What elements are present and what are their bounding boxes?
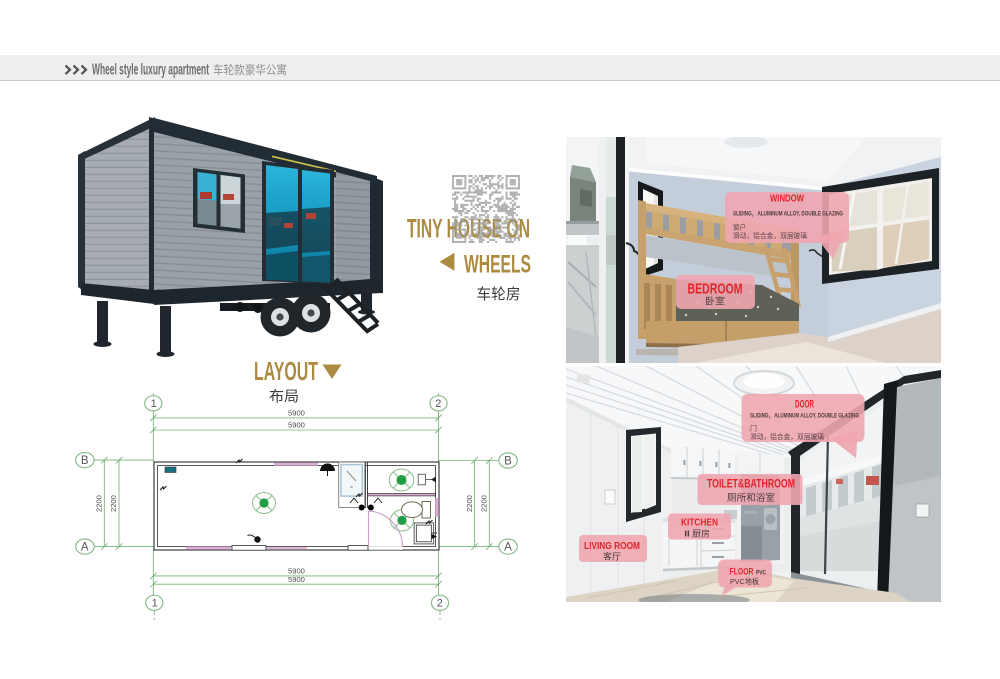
svg-text:DOOR: DOOR <box>795 399 814 411</box>
svg-text:LAYOUT: LAYOUT <box>254 356 318 386</box>
svg-text:LIVING ROOM: LIVING ROOM <box>584 541 640 552</box>
svg-text:SLIDING， ALUMINUM ALLOY, DOUB: SLIDING， ALUMINUM ALLOY, DOUBLE GLAZING <box>750 413 859 420</box>
svg-text:TOILET&BATHROOM: TOILET&BATHROOM <box>707 479 795 491</box>
svg-text:B: B <box>81 455 89 467</box>
svg-text:A: A <box>504 542 512 554</box>
svg-text:窗户: 窗户 <box>733 223 746 232</box>
svg-text:BEDROOM: BEDROOM <box>688 281 743 298</box>
svg-text:5900: 5900 <box>288 575 305 584</box>
svg-text:5900: 5900 <box>288 409 305 418</box>
svg-text:卧室: 卧室 <box>705 296 725 308</box>
svg-text:2: 2 <box>435 398 441 410</box>
svg-text:A: A <box>81 542 89 554</box>
svg-text:厕所和浴室: 厕所和浴室 <box>727 492 775 504</box>
svg-text:PVC: PVC <box>756 570 766 577</box>
svg-text:5900: 5900 <box>288 421 305 430</box>
svg-text:1: 1 <box>151 398 157 410</box>
svg-text:滑动，铝合金，双层玻璃: 滑动，铝合金，双层玻璃 <box>733 231 807 240</box>
svg-text:Wheel style luxury apartment: Wheel style luxury apartment <box>92 62 209 79</box>
svg-text:WINDOW: WINDOW <box>770 194 804 205</box>
svg-text:车轮款豪华公寓: 车轮款豪华公寓 <box>213 62 287 77</box>
svg-text:‖: ‖ <box>684 529 691 539</box>
svg-text:1: 1 <box>152 598 158 610</box>
svg-text:PVC地板: PVC地板 <box>730 576 759 586</box>
svg-text:滑动，铝合金，双层玻璃: 滑动，铝合金，双层玻璃 <box>750 432 824 441</box>
svg-text:WHEELS: WHEELS <box>464 251 531 279</box>
svg-text:2200: 2200 <box>480 495 489 512</box>
svg-text:门: 门 <box>750 424 757 433</box>
svg-text:厨房: 厨房 <box>692 529 710 539</box>
svg-text:客厅: 客厅 <box>603 552 622 562</box>
svg-text:2200: 2200 <box>95 495 104 512</box>
svg-text:2200: 2200 <box>465 495 474 512</box>
svg-text:FLOOR: FLOOR <box>730 567 754 578</box>
svg-text:KITCHEN: KITCHEN <box>681 517 718 529</box>
svg-text:车轮房: 车轮房 <box>477 286 521 303</box>
svg-text:B: B <box>504 456 512 468</box>
svg-text:2: 2 <box>437 598 443 610</box>
svg-text:SLIDING， ALUMINUM ALLOY, DOUB: SLIDING， ALUMINUM ALLOY, DOUBLE GLAZING <box>733 211 843 218</box>
svg-text:2200: 2200 <box>109 495 118 512</box>
